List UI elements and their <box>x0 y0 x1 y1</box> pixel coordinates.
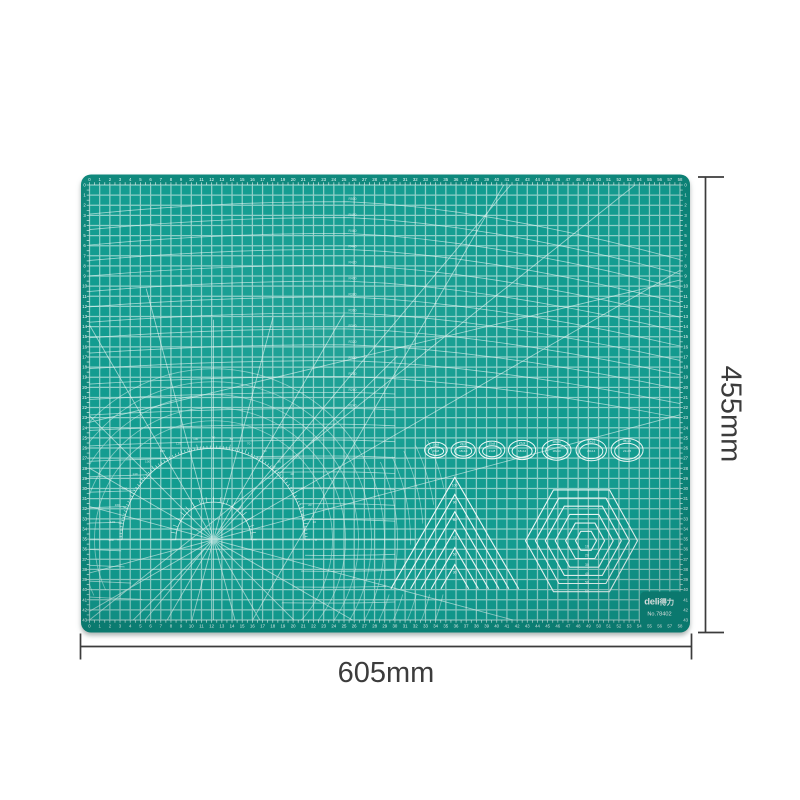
svg-text:455mm: 455mm <box>715 366 747 463</box>
svg-text:605mm: 605mm <box>338 657 435 689</box>
